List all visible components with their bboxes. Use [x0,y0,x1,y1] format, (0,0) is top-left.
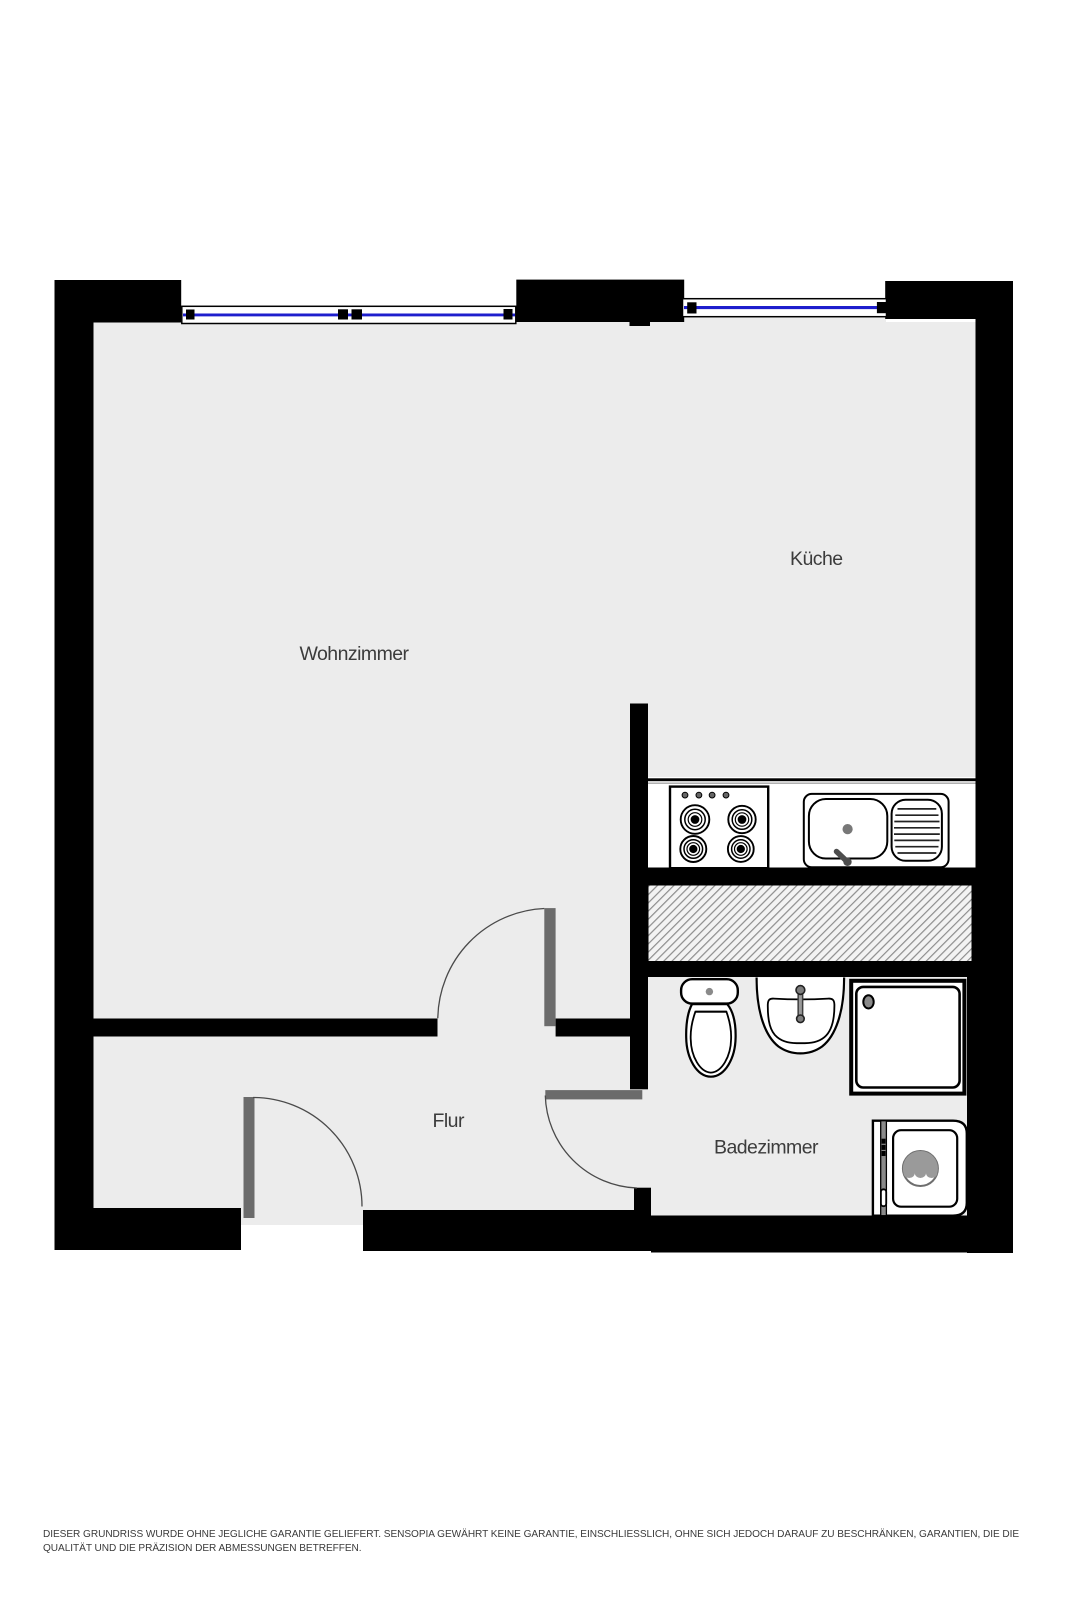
svg-text:Wohnzimmer: Wohnzimmer [300,643,410,665]
svg-text:Küche: Küche [790,548,843,570]
svg-text:Badezimmer: Badezimmer [714,1137,819,1159]
svg-text:Flur: Flur [433,1110,465,1132]
